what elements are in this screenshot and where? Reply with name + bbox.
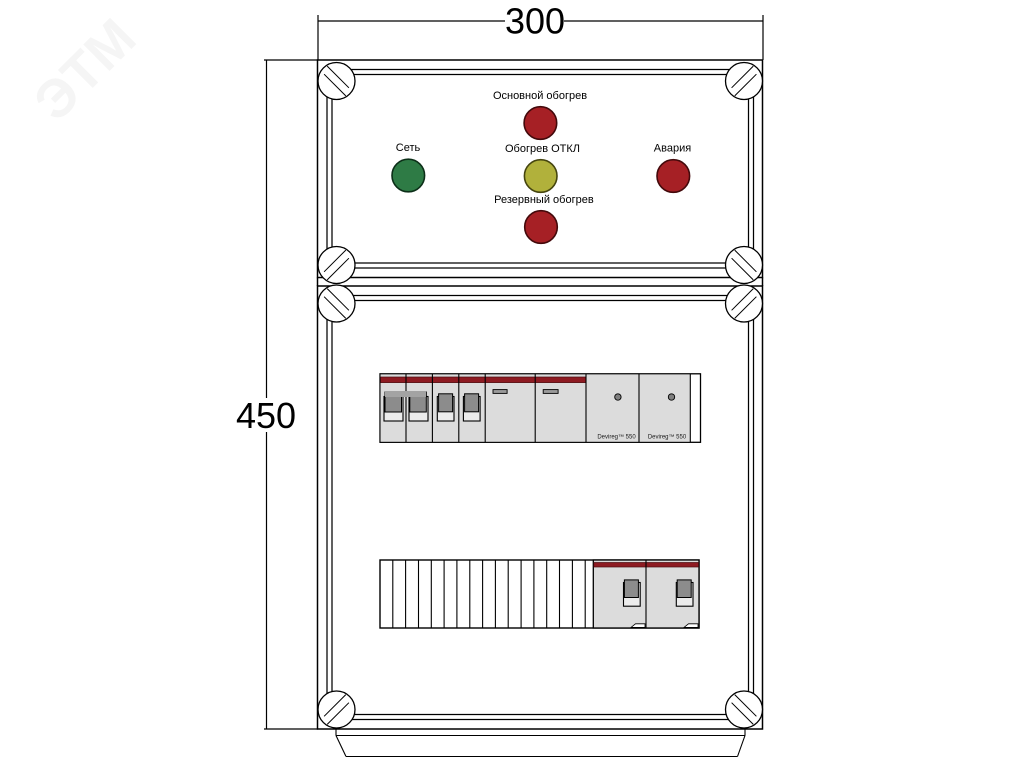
svg-text:Авария: Авария [654, 143, 691, 155]
svg-text:Резервный обогрев: Резервный обогрев [494, 194, 594, 206]
svg-text:300: 300 [505, 1, 565, 42]
svg-text:Devireg™ 550: Devireg™ 550 [597, 434, 636, 441]
svg-text:Devireg™ 550: Devireg™ 550 [648, 434, 687, 441]
svg-text:Обогрев ОТКЛ: Обогрев ОТКЛ [505, 143, 580, 155]
svg-text:450: 450 [236, 395, 296, 436]
svg-text:Сеть: Сеть [396, 142, 421, 154]
svg-text:Основной обогрев: Основной обогрев [493, 90, 587, 102]
